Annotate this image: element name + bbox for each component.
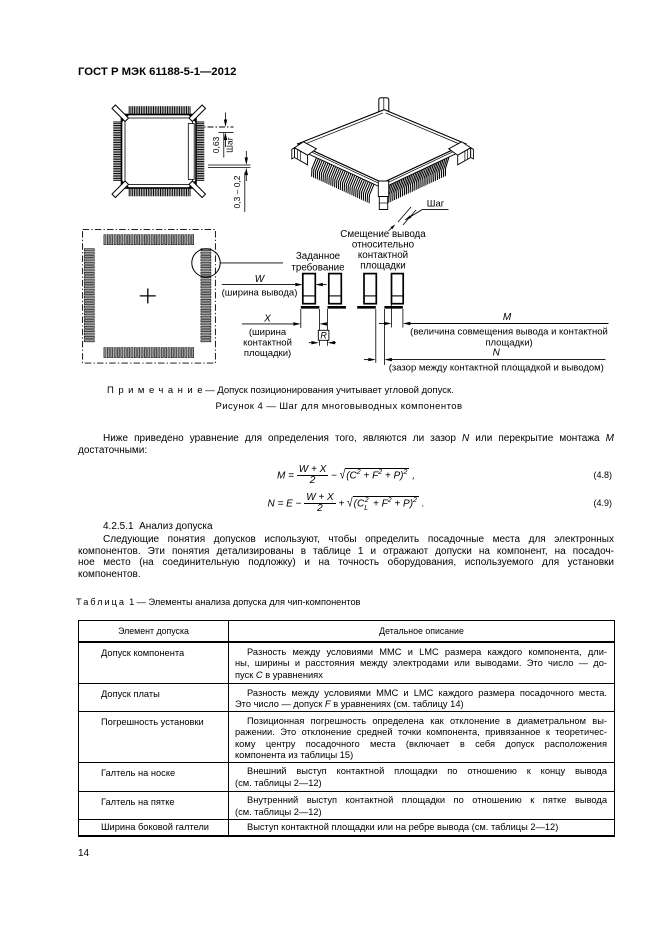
- svg-text:(ширина: (ширина: [249, 327, 287, 338]
- svg-text:M: M: [503, 312, 512, 323]
- svg-text:площадки: площадки: [360, 260, 406, 271]
- svg-text:(величина совмещения вывода и: (величина совмещения вывода и контактной: [410, 326, 608, 337]
- svg-text:контактной: контактной: [358, 250, 408, 261]
- svg-text:N: N: [493, 348, 501, 359]
- svg-text:Смещение вывода: Смещение вывода: [340, 229, 426, 240]
- svg-text:(зазор между контактной площад: (зазор между контактной площадкой и выво…: [389, 362, 604, 373]
- svg-text:требование: требование: [291, 262, 345, 273]
- svg-text:W: W: [255, 274, 266, 285]
- svg-text:Шаг: Шаг: [225, 137, 235, 153]
- svg-text:(ширина вывода): (ширина вывода): [222, 287, 298, 298]
- svg-text:0,63: 0,63: [211, 136, 221, 153]
- svg-text:R: R: [320, 331, 327, 341]
- svg-text:0,3 – 0,2: 0,3 – 0,2: [232, 175, 242, 208]
- svg-text:контактной: контактной: [243, 337, 292, 348]
- svg-text:площадки): площадки): [244, 348, 291, 359]
- svg-text:Шаг: Шаг: [427, 199, 445, 210]
- svg-text:относительно: относительно: [352, 239, 415, 250]
- svg-text:X: X: [263, 313, 271, 324]
- svg-text:Заданное: Заданное: [296, 251, 341, 262]
